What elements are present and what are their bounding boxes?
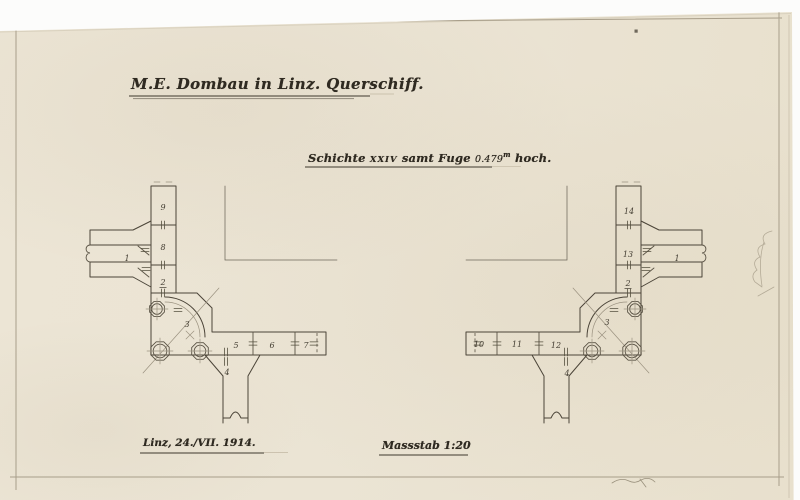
bottom-scribble xyxy=(612,478,655,487)
stone-number-label: 4 xyxy=(563,369,569,378)
right-pier-outline xyxy=(532,355,587,423)
sheet-title: M.E. Dombau in Linz. Querschiff. xyxy=(131,75,424,93)
place-date-note: Linz, 24./VII. 1914. xyxy=(143,437,256,449)
left-plan-drawing: 982135674 xyxy=(86,182,326,423)
stone-number-label: 2 xyxy=(159,278,165,287)
stone-number-label: 13 xyxy=(623,250,633,259)
crossing-wall-reference-line-right xyxy=(466,186,567,260)
pencil-marks xyxy=(612,30,774,488)
right-arm-molding-profile xyxy=(702,245,706,262)
scale-note: Massstab 1:20 xyxy=(382,439,471,452)
colonnette-axis-crosses xyxy=(580,298,646,364)
right-plan-drawing: 14132131011124 xyxy=(466,182,706,423)
left-colonnettes xyxy=(146,298,212,364)
stone-number-label: 5 xyxy=(233,341,238,350)
stone-number-label: 14 xyxy=(624,207,634,216)
left-arm-molding-profile xyxy=(86,245,90,262)
course-height-value: 0.479 xyxy=(475,154,503,165)
subtitle-suffix: hoch. xyxy=(515,151,551,165)
scanned-sheet: 982135674 xyxy=(0,0,800,500)
right-colonnettes xyxy=(580,298,646,364)
paper-top-edge xyxy=(0,14,791,33)
scale-ratio: 1:20 xyxy=(444,439,471,452)
stone-number-label: 9 xyxy=(160,203,165,212)
stone-number-label: 2 xyxy=(624,279,630,288)
left-pier-outline xyxy=(205,355,260,423)
stone-number-label: 10 xyxy=(474,340,484,349)
subtitle-middle: samt Fuge xyxy=(402,151,471,165)
right-quarter-arch-arc xyxy=(587,297,627,337)
margin-profile-sketch xyxy=(753,231,774,296)
stone-number-label: 12 xyxy=(551,341,561,350)
text-underlines xyxy=(129,94,521,455)
subtitle-prefix: Schichte xyxy=(308,151,366,165)
course-height-unit: m xyxy=(503,150,511,159)
stone-number-label: 1 xyxy=(674,254,679,263)
stone-number-label: 7 xyxy=(303,341,309,350)
left-quarter-arch-arc xyxy=(165,297,205,337)
colonnette-axis-crosses xyxy=(146,298,212,364)
left-wall-arm-outline xyxy=(90,221,151,287)
scale-word: Massstab xyxy=(382,439,440,452)
right-wall-arm-outline xyxy=(641,221,702,287)
course-subtitle: Schichte XXIV samt Fuge 0.479m hoch. xyxy=(308,150,551,165)
drawing-paper: 982135674 xyxy=(0,0,800,500)
left-quarter-arch-inner-arc xyxy=(165,302,200,337)
stone-number-label: 3 xyxy=(604,318,609,327)
course-numeral: XXIV xyxy=(370,155,398,165)
crossing-wall-reference-line-left xyxy=(225,186,337,260)
stone-number-label: 1 xyxy=(124,254,129,263)
stone-number-label: 4 xyxy=(223,368,229,377)
ink-speck xyxy=(635,30,638,33)
stone-number-label: 6 xyxy=(269,341,274,350)
stone-number-label: 11 xyxy=(512,340,522,349)
stone-number-label: 8 xyxy=(160,243,165,252)
stone-number-label: 3 xyxy=(184,320,189,329)
